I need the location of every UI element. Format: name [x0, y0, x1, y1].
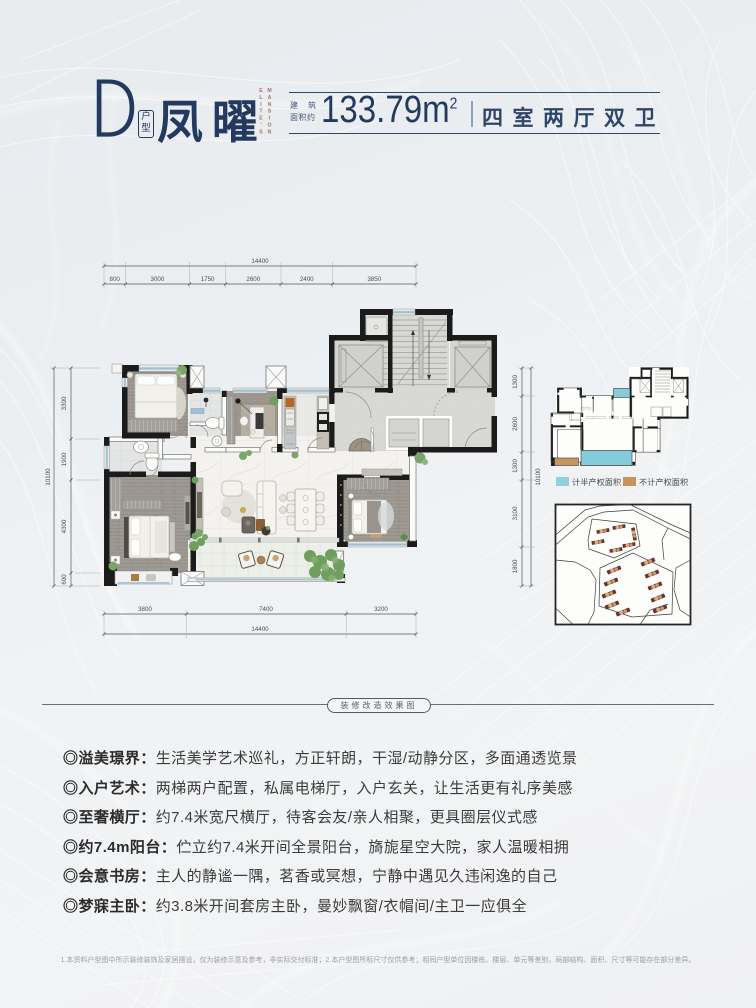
svg-text:2400: 2400 [300, 276, 314, 283]
svg-text:3850: 3850 [367, 276, 381, 283]
svg-text:3800: 3800 [138, 606, 152, 613]
svg-text:600: 600 [61, 574, 68, 585]
svg-text:3100: 3100 [512, 506, 519, 520]
svg-text:1300: 1300 [512, 375, 519, 389]
svg-text:14400: 14400 [251, 258, 269, 265]
svg-text:4300: 4300 [61, 519, 68, 533]
svg-text:7400: 7400 [259, 606, 273, 613]
svg-text:1300: 1300 [512, 459, 519, 473]
svg-text:2600: 2600 [246, 276, 260, 283]
svg-text:10100: 10100 [535, 468, 542, 486]
svg-text:1900: 1900 [61, 452, 68, 466]
svg-text:不计产权面积: 不计产权面积 [639, 477, 688, 487]
svg-text:3300: 3300 [61, 396, 68, 410]
svg-text:10100: 10100 [45, 468, 52, 486]
svg-text:计半产权面积: 计半产权面积 [572, 477, 621, 487]
svg-text:3200: 3200 [374, 606, 388, 613]
svg-text:3000: 3000 [151, 276, 165, 283]
svg-text:1800: 1800 [512, 559, 519, 573]
svg-text:1750: 1750 [201, 276, 215, 283]
svg-text:2600: 2600 [512, 417, 519, 431]
svg-text:14400: 14400 [251, 626, 269, 633]
svg-text:800: 800 [110, 276, 121, 283]
